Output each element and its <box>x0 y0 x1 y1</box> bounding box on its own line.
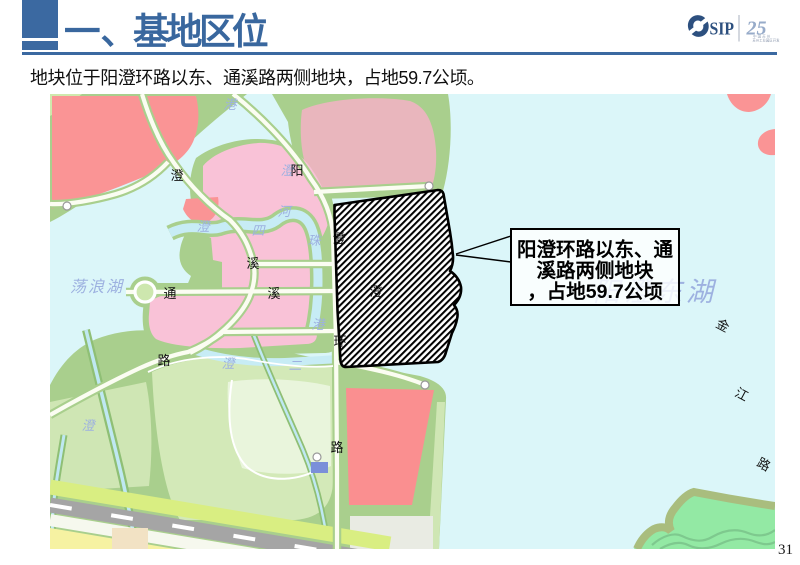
svg-text:路: 路 <box>330 440 343 455</box>
svg-text:，占地59.7公顷: ，占地59.7公顷 <box>527 280 663 303</box>
svg-text:港: 港 <box>223 97 238 112</box>
svg-text:溪: 溪 <box>267 286 280 301</box>
svg-text:溪路两侧地块: 溪路两侧地块 <box>536 259 654 282</box>
svg-text:澄: 澄 <box>369 284 382 299</box>
svg-text:阳: 阳 <box>290 163 303 178</box>
svg-text:路: 路 <box>157 353 170 368</box>
svg-text:SIP: SIP <box>710 18 735 38</box>
svg-text:澄: 澄 <box>81 418 96 433</box>
svg-text:荡浪湖: 荡浪湖 <box>70 278 125 296</box>
svg-text:澄: 澄 <box>196 219 211 234</box>
svg-text:溪: 溪 <box>246 256 259 271</box>
svg-text:珠: 珠 <box>307 233 321 248</box>
svg-text:澄: 澄 <box>332 231 345 246</box>
svg-text:环: 环 <box>333 334 346 349</box>
svg-text:阳澄环路以东、通: 阳澄环路以东、通 <box>517 238 674 261</box>
svg-text:澄: 澄 <box>170 168 183 183</box>
svg-text:二: 二 <box>288 358 302 373</box>
svg-text:澄: 澄 <box>221 356 236 371</box>
svg-text:苏州工业园区开发: 苏州工业园区开发 <box>753 38 781 43</box>
svg-text:港: 港 <box>311 317 326 332</box>
svg-text:通: 通 <box>163 286 176 301</box>
svg-text:四: 四 <box>251 223 266 238</box>
